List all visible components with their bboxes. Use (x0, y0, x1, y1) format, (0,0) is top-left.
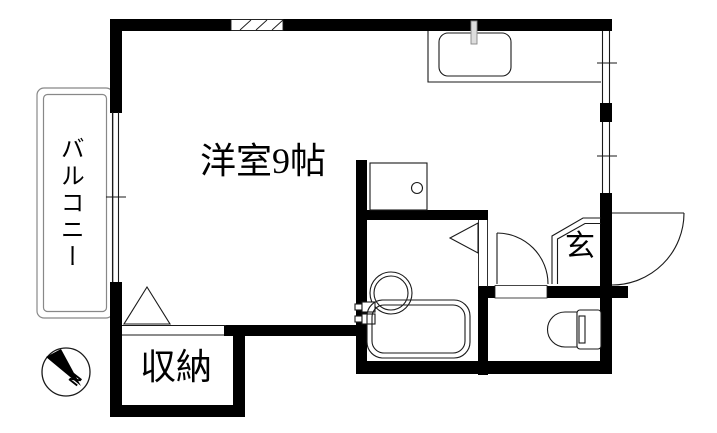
bathroom-door (450, 220, 488, 287)
storage-door-triangle (124, 287, 170, 324)
floor-plan-drawing (0, 0, 717, 433)
storage-opening (122, 326, 226, 336)
entrance-label: 玄 (565, 231, 595, 263)
window-right-lower (597, 122, 617, 193)
window-left (106, 112, 126, 282)
top-wall-hatch (231, 20, 283, 31)
room-label: 洋室9帖 (200, 143, 326, 181)
storage-label: 収納 (140, 349, 212, 387)
kitchen-faucet (471, 21, 477, 44)
toilet (548, 310, 602, 349)
toilet-door-opening (495, 286, 547, 299)
compass (42, 348, 90, 396)
toilet-door-swing (497, 233, 548, 284)
floor-plan: 洋室9帖 バルコニー 収納 玄 N (0, 0, 717, 433)
window-right-upper (597, 31, 617, 103)
washing-machine-pan (370, 163, 427, 210)
entrance-door-swing (612, 213, 684, 285)
balcony-label: バルコニー (56, 136, 81, 286)
